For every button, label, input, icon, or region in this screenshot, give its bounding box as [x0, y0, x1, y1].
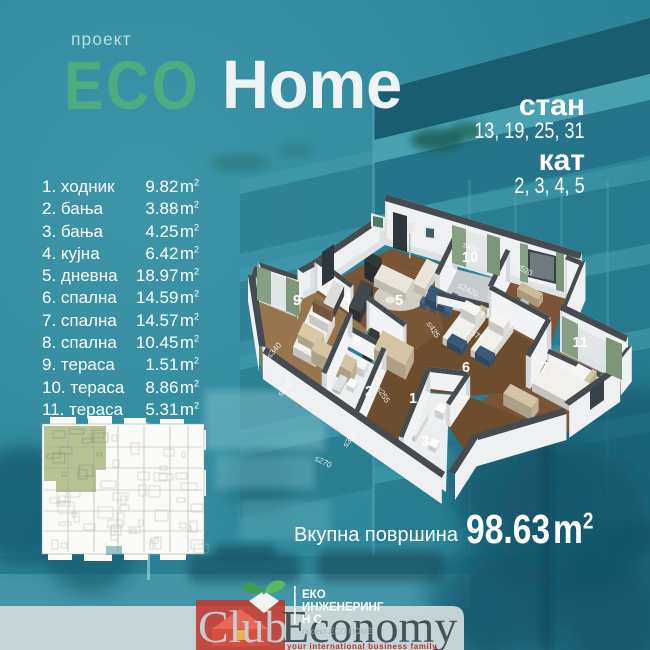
svg-text:Н С: Н С [302, 614, 322, 626]
svg-text:проект ECO HOME: проект ECO HOME [302, 627, 373, 636]
svg-text:ИНЖЕНЕРИНГ: ИНЖЕНЕРИНГ [302, 602, 384, 614]
svg-text:ЕКО: ЕКО [302, 589, 326, 601]
